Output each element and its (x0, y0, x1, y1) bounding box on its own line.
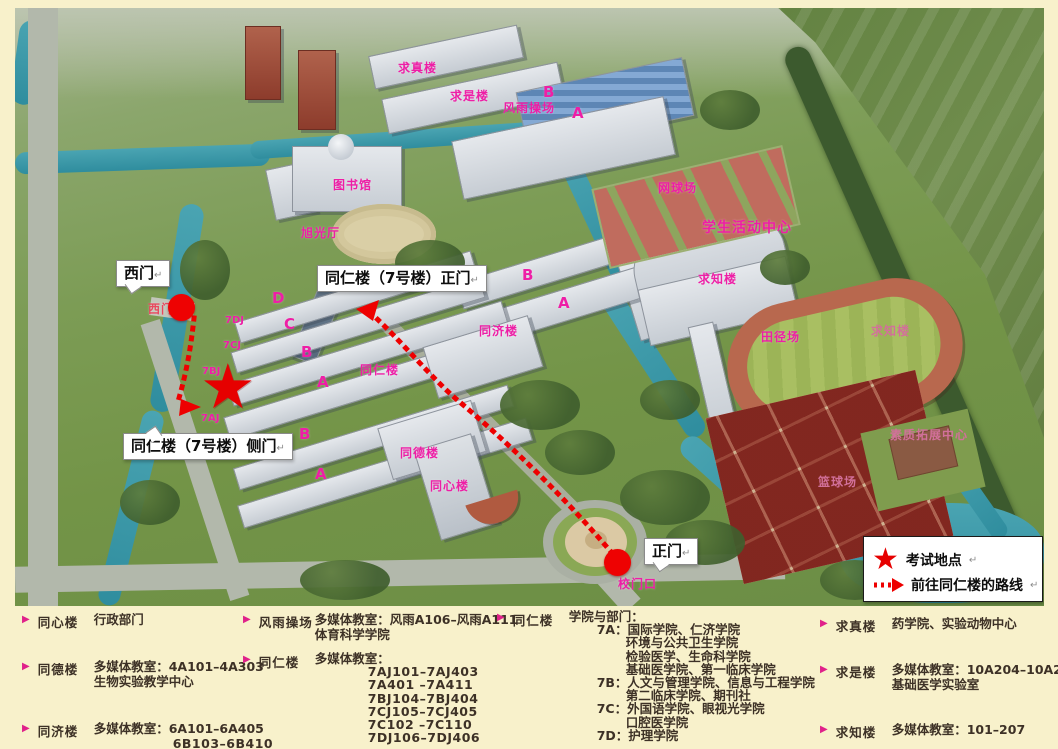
building-name: 同心楼 (38, 612, 94, 631)
map-label-fengyu-b: B (543, 84, 554, 101)
key-line: 多媒体教室：风雨A106–风雨A111 (315, 612, 518, 627)
key-group-tongji: ▶ 同济楼 多媒体教室：6A101–6A405 6B103–6B410 (22, 721, 240, 749)
map-label-qiuzhi-east: 求知楼 (871, 325, 910, 338)
map-label-suzhi: 素质拓展中心 (890, 429, 968, 442)
key-line: 药学院、实验动物中心 (892, 616, 1017, 631)
return-mark: ↵ (276, 443, 284, 454)
building-name: 风雨操场 (259, 612, 315, 631)
tower-building (245, 26, 281, 100)
map-legend: ★ 考试地点 ↵ 前往同仁楼的路线 ↵ (863, 536, 1043, 602)
trees (700, 90, 760, 130)
triangle-bullet-icon: ▶ (820, 618, 828, 629)
map-label-tongji-b: B (522, 267, 533, 284)
trees (640, 380, 700, 420)
key-group-tongde: ▶ 同德楼 多媒体教室：4A101–4A303 生物实验教学中心 (22, 659, 240, 689)
map-label-block-c: C (284, 316, 295, 333)
map-label-fengyu: 风雨操场 (503, 102, 555, 115)
building-name: 同仁楼 (259, 652, 315, 671)
triangle-bullet-icon: ▶ (820, 664, 828, 675)
map-label-block-b: B (301, 344, 312, 361)
key-column-1: ▶ 同心楼 行政部门 ▶ 同德楼 多媒体教室：4A101–4A303 生物实验教… (22, 612, 240, 749)
trees (545, 430, 615, 475)
west-highway (28, 8, 58, 606)
campus-map-page: 求真楼 求是楼 风雨操场 B A 图书馆 旭光厅 网球场 学生活动中心 求知楼 … (0, 0, 1058, 749)
map-label-block-d: D (272, 290, 284, 307)
map-label-basketball: 篮球场 (818, 476, 857, 489)
key-group-qiuzhen: ▶ 求真楼 药学院、实验动物中心 (820, 616, 1048, 635)
return-mark: ↵ (1030, 580, 1038, 591)
building-name: 求知楼 (836, 722, 892, 741)
map-label-xuguang: 旭光厅 (301, 227, 340, 240)
map-label-7dj: 7DJ (225, 315, 244, 326)
callout-main-gate: 正门↵ (644, 538, 698, 565)
key-line: 7D：护理学院 (597, 729, 815, 742)
map-label-library: 图书馆 (333, 179, 372, 192)
star-icon: ★ (872, 545, 899, 575)
key-column-3: ▶ 同仁楼 学院与部门： 7A：国际学院、仁济学院 环境与公共卫生学院 检验医学… (497, 610, 822, 742)
triangle-bullet-icon: ▶ (22, 723, 30, 734)
roundabout-center (585, 531, 607, 549)
map-label-qiuzhi: 求知楼 (698, 273, 737, 286)
triangle-bullet-icon: ▶ (22, 661, 30, 672)
legend-exam-row: ★ 考试地点 ↵ (872, 545, 977, 575)
west-gate-marker-dot (168, 294, 195, 321)
map-label-track: 田径场 (761, 331, 800, 344)
map-label-tennis: 网球场 (658, 182, 697, 195)
map-label-tongren: 同仁楼 (360, 364, 399, 377)
callout-text: 正门 (652, 542, 682, 560)
key-group-qiushi: ▶ 求是楼 多媒体教室：10A204–10A213 基础医学实验室 (820, 662, 1048, 692)
callout-west-gate: 西门↵ (116, 260, 170, 287)
key-line: 行政部门 (94, 612, 144, 627)
key-group-tongren-rooms: ▶ 同仁楼 多媒体教室： 7AJ101–7AJ403 7A401 –7A411 … (243, 652, 495, 744)
key-column-2: ▶ 风雨操场 多媒体教室：风雨A106–风雨A111 体育科学学院 ▶ 同仁楼 … (243, 612, 495, 744)
map-label-qiuzhen: 求真楼 (398, 62, 437, 75)
key-line: 检验医学、生命科学院 (626, 650, 815, 663)
trees (500, 380, 580, 430)
triangle-bullet-icon: ▶ (243, 654, 251, 665)
map-label-fengyu-a: A (572, 105, 584, 122)
map-label-block-a: A (317, 374, 329, 391)
building-name: 求真楼 (836, 616, 892, 635)
building-name: 求是楼 (836, 662, 892, 681)
key-line: 多媒体教室：10A204–10A213 (892, 662, 1058, 677)
key-column-4: ▶ 求真楼 药学院、实验动物中心 ▶ 求是楼 多媒体教室：10A204–10A2… (820, 616, 1048, 741)
return-mark: ↵ (682, 548, 690, 559)
map-label-qiushi: 求是楼 (450, 90, 489, 103)
map-label-tongji: 同济楼 (479, 325, 518, 338)
legend-route-label: 前往同仁楼的路线 (911, 575, 1023, 595)
key-line: 多媒体教室：101–207 (892, 722, 1025, 737)
map-label-school-gate: 校门口 (618, 578, 657, 591)
trees (300, 560, 390, 600)
trees (180, 240, 230, 300)
legend-route-row: 前往同仁楼的路线 ↵ (872, 575, 1038, 595)
dashed-arrow-icon (872, 578, 904, 592)
callout-side-door: 同仁楼（7号楼）侧门↵ (123, 433, 293, 460)
key-line: 口腔医学院 (626, 716, 815, 729)
map-label-activity-center: 学生活动中心 (702, 221, 792, 236)
key-line: 7C：外国语学院、眼视光学院 (597, 702, 815, 715)
callout-front-door: 同仁楼（7号楼）正门↵ (317, 265, 487, 292)
key-line: 环境与公共卫生学院 (626, 636, 815, 649)
return-mark: ↵ (470, 275, 478, 286)
triangle-bullet-icon: ▶ (243, 614, 251, 625)
building-name: 同仁楼 (513, 610, 569, 629)
main-gate-marker-dot (604, 549, 631, 576)
key-group-tongren-colleges: ▶ 同仁楼 学院与部门： 7A：国际学院、仁济学院 环境与公共卫生学院 检验医学… (497, 610, 822, 742)
callout-text: 西门 (124, 264, 154, 282)
map-label-tongji-a: A (558, 295, 570, 312)
return-mark: ↵ (969, 555, 977, 566)
key-line: 多媒体教室：4A101–4A303 (94, 659, 264, 674)
trees (620, 470, 710, 525)
key-line: 7A401 –7A411 (368, 678, 480, 691)
map-label-tongxin: 同心楼 (430, 480, 469, 493)
exam-location-star: ★ (200, 356, 256, 418)
building-name: 同济楼 (38, 721, 94, 740)
key-line: 7DJ106–7DJ406 (368, 731, 480, 744)
map-label-tongde: 同德楼 (400, 447, 439, 460)
key-line: 体育科学学院 (315, 627, 518, 642)
campus-aerial-map: 求真楼 求是楼 风雨操场 B A 图书馆 旭光厅 网球场 学生活动中心 求知楼 … (15, 8, 1044, 606)
key-line: 7BJ104–7BJ404 (368, 692, 480, 705)
library-dome (328, 134, 354, 160)
key-group-tongxin: ▶ 同心楼 行政部门 (22, 612, 240, 631)
callout-text: 同仁楼（7号楼）正门 (325, 269, 470, 287)
key-group-fengyu: ▶ 风雨操场 多媒体教室：风雨A106–风雨A111 体育科学学院 (243, 612, 495, 642)
key-group-qiuzhi: ▶ 求知楼 多媒体教室：101–207 (820, 722, 1048, 741)
triangle-bullet-icon: ▶ (820, 724, 828, 735)
building-key-panel: ▶ 同心楼 行政部门 ▶ 同德楼 多媒体教室：4A101–4A303 生物实验教… (0, 606, 1058, 749)
key-line: 生物实验教学中心 (94, 674, 264, 689)
key-line: 基础医学实验室 (892, 677, 1058, 692)
triangle-bullet-icon: ▶ (22, 614, 30, 625)
return-mark: ↵ (154, 270, 162, 281)
map-label-block-a2: A (315, 466, 327, 483)
triangle-bullet-icon: ▶ (497, 612, 505, 623)
trees (120, 480, 180, 525)
trees (760, 250, 810, 285)
legend-exam-label: 考试地点 (906, 550, 962, 570)
map-label-block-b2: B (299, 426, 310, 443)
building-name: 同德楼 (38, 659, 94, 678)
tower-building (298, 50, 336, 130)
